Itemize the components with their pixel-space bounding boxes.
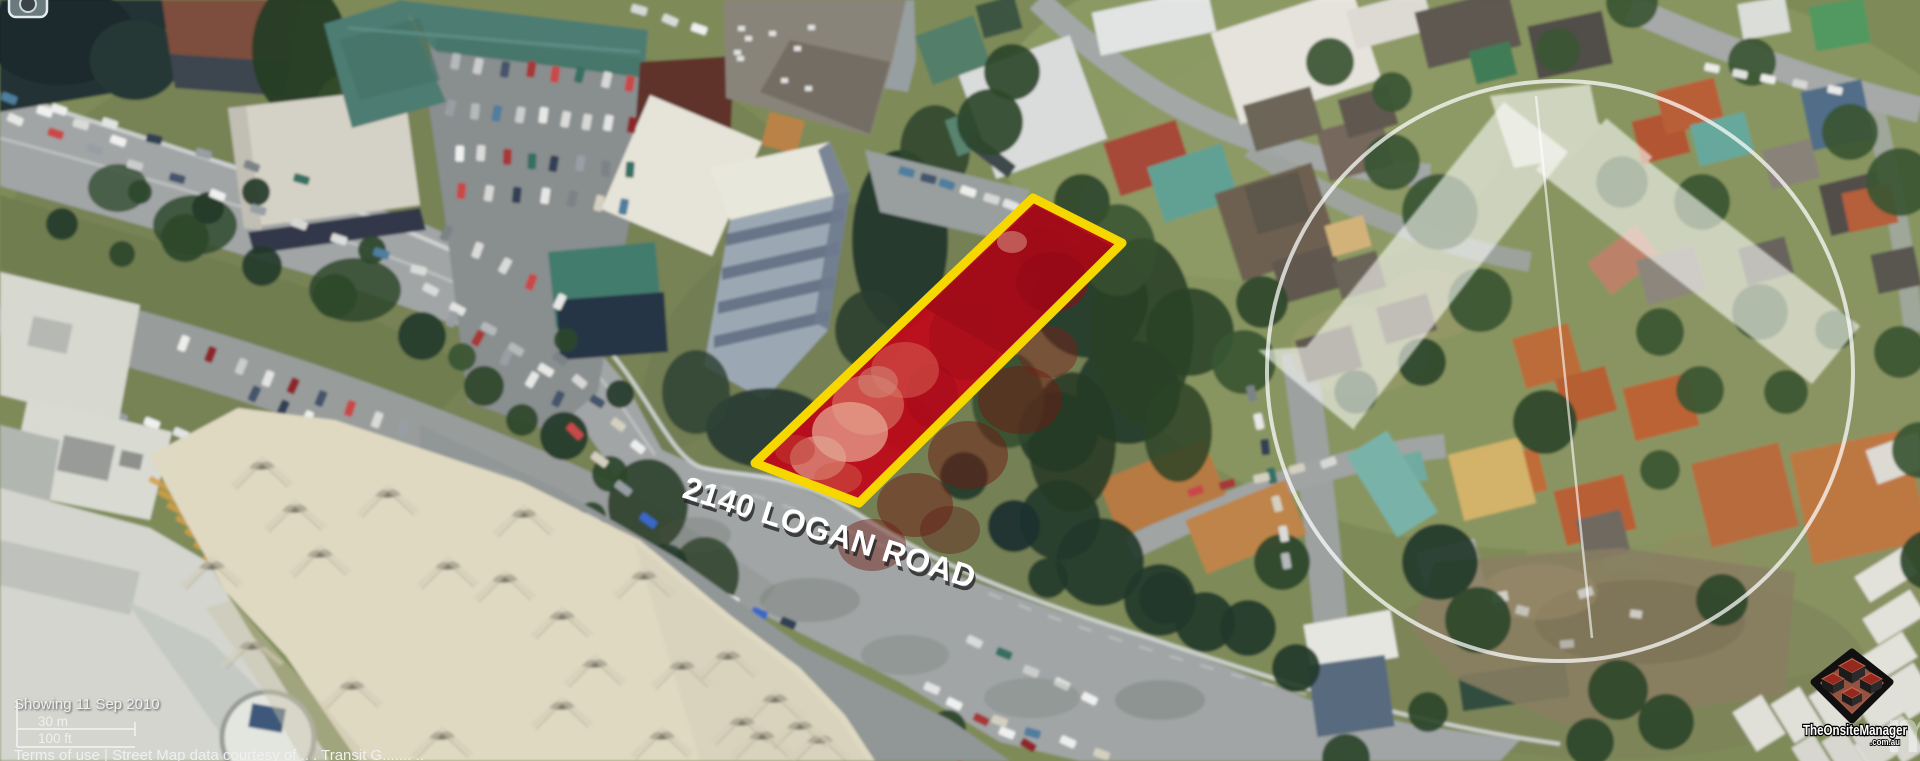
svg-text:.com.au: .com.au <box>1870 737 1900 747</box>
svg-text:100 ft: 100 ft <box>38 731 72 746</box>
svg-text:Showing 11 Sep 2010: Showing 11 Sep 2010 <box>14 696 160 713</box>
svg-text:30 m: 30 m <box>38 714 68 729</box>
svg-text:Terms of use | Street Map data: Terms of use | Street Map data courtesy … <box>14 747 424 761</box>
